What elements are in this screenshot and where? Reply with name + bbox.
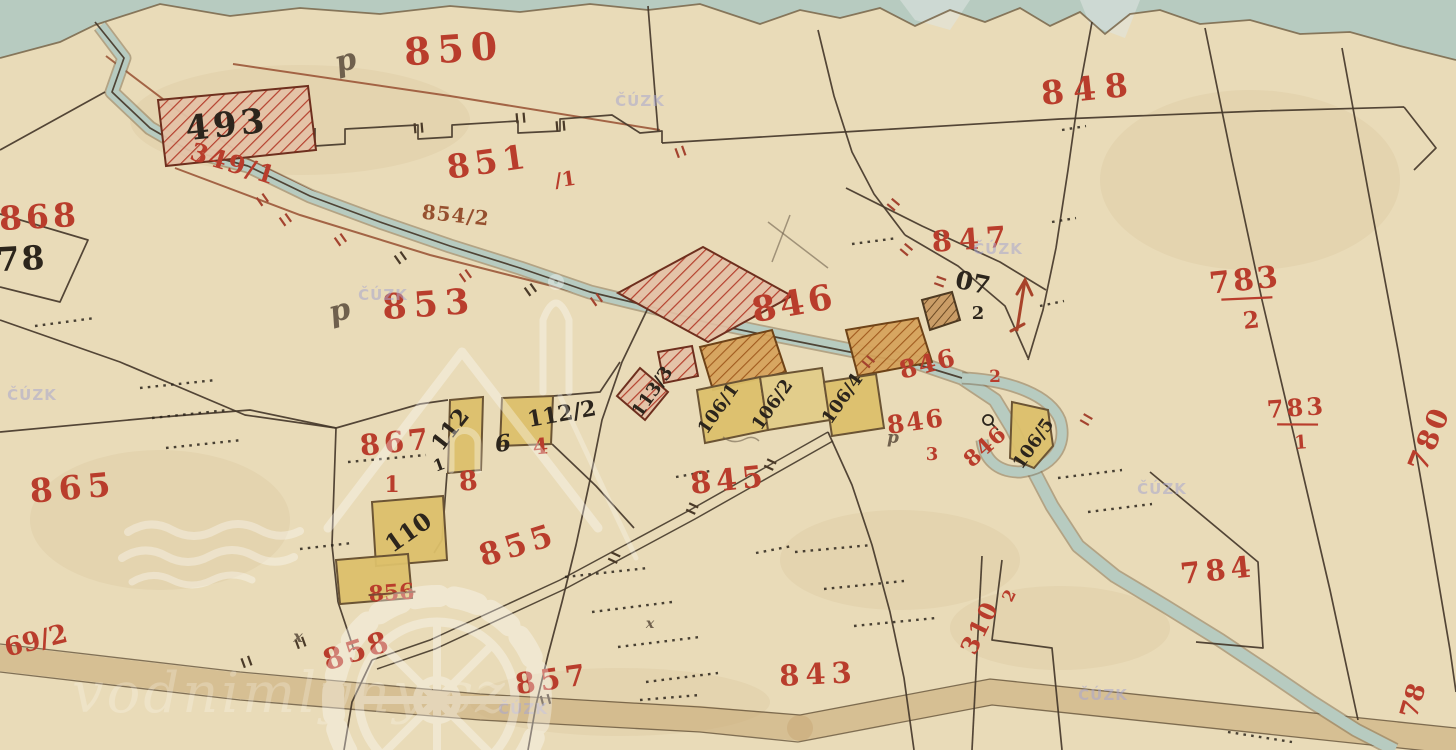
watermark-site-text: vodnimlyny.cz (72, 661, 508, 726)
archive-watermark-text: ČÚZK (1078, 685, 1128, 704)
parcel-number-label: 3 (926, 444, 939, 465)
archive-watermark-text: ČÚZK (973, 239, 1023, 258)
parcel-number-label: p (887, 428, 899, 448)
house-number-label: 78 (0, 238, 47, 280)
fraction-denominator: 2 (1242, 305, 1261, 335)
map-layers: p850493851/1349/1854/2p85386878848847072… (0, 0, 1456, 750)
archive-watermark-text: ČÚZK (1137, 479, 1187, 498)
parcel-number-label: 1 (384, 472, 399, 498)
survey-tick-mark (564, 121, 565, 131)
fraction-numerator: 783 (1208, 259, 1283, 301)
cadastral-map-canvas[interactable]: p850493851/1349/1854/2p85386878848847072… (0, 0, 1456, 750)
archive-watermark-text: ČÚZK (615, 91, 665, 110)
parcel-number-label: 868 (0, 195, 81, 238)
parcel-number-label: 850 (402, 23, 505, 75)
parcel-number-label: x (645, 616, 655, 632)
parcel-number-label: 865 (28, 464, 118, 510)
parcel-number-label: x (292, 627, 303, 646)
parcel-number-label: 843 (778, 655, 858, 693)
survey-tick-mark (422, 123, 423, 133)
survey-tick-mark (517, 113, 518, 123)
fraction-denominator: 1 (1294, 431, 1309, 454)
cadastral-map-scan: p850493851/1349/1854/2p85386878848847072… (0, 0, 1456, 750)
house-number-label: 2 (972, 303, 985, 324)
survey-tick-mark (557, 121, 558, 131)
parcel-number-label: 2 (989, 367, 1001, 387)
parcel-number-label: /1 (553, 166, 577, 193)
paper-stain (780, 510, 1020, 610)
archive-watermark-text: ČÚZK (358, 285, 408, 304)
archive-watermark-text: ČÚZK (7, 385, 57, 404)
survey-tick-mark (415, 123, 416, 133)
fraction-numerator: 783 (1266, 391, 1327, 424)
survey-tick-mark (524, 113, 525, 123)
